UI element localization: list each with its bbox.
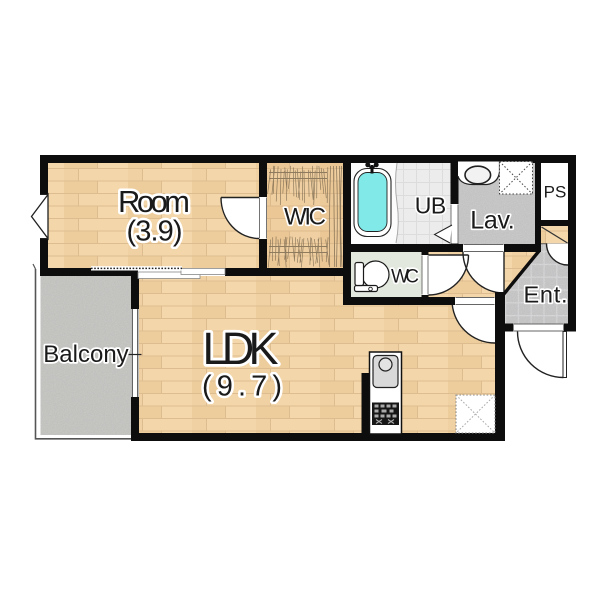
svg-text:Room: Room bbox=[118, 184, 190, 219]
svg-text:WIC: WIC bbox=[284, 204, 326, 231]
svg-text:(3.9): (3.9) bbox=[127, 216, 183, 248]
svg-text:PS: PS bbox=[544, 183, 567, 202]
svg-text:Ent.: Ent. bbox=[524, 282, 568, 308]
svg-text:LDK: LDK bbox=[203, 323, 279, 374]
svg-text:Lav.: Lav. bbox=[470, 207, 515, 235]
svg-text:Balcony: Balcony bbox=[43, 341, 128, 368]
svg-text:UB: UB bbox=[415, 193, 447, 219]
svg-text:WC: WC bbox=[391, 267, 419, 288]
